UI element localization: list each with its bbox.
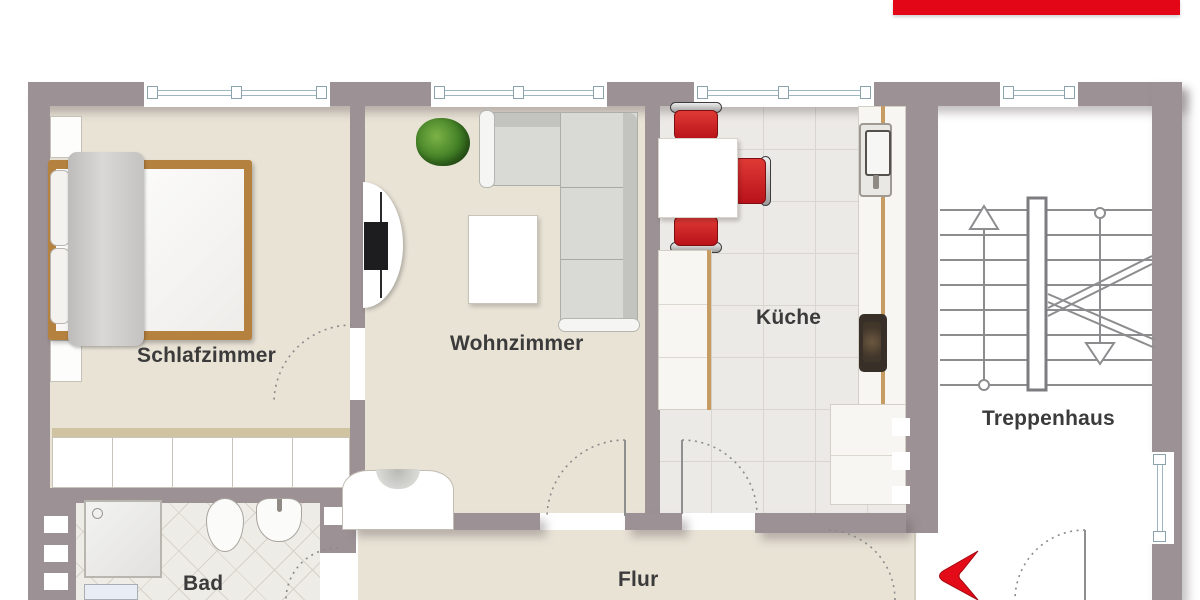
counter-edge-left	[707, 250, 711, 410]
wall-window-block-2	[44, 545, 68, 562]
dresser	[342, 470, 454, 530]
room-label-wohnzimmer: Wohnzimmer	[450, 332, 583, 356]
kitchen-table	[658, 138, 738, 218]
sink-faucet	[873, 175, 879, 189]
room-label-treppenhaus: Treppenhaus	[982, 407, 1115, 431]
stove	[859, 314, 887, 372]
sink-basin	[865, 130, 891, 176]
washing-machine	[84, 584, 138, 600]
bed-pillow-1	[50, 170, 70, 246]
sofa-armrest-left	[479, 110, 495, 188]
bath-faucet-icon	[277, 499, 282, 512]
window-kueche	[694, 79, 874, 107]
sofa-right-section	[560, 112, 638, 330]
coffee-table	[468, 215, 538, 304]
wall-window-block-3	[44, 573, 68, 590]
kitchen-chair-right	[734, 158, 766, 204]
room-label-kueche: Küche	[756, 306, 821, 330]
window-treppenhaus-right	[1146, 452, 1174, 544]
window-schlafzimmer	[144, 79, 330, 107]
kitchen-chair-top	[674, 110, 718, 140]
stove-burner	[863, 322, 881, 362]
shower-drain-icon	[92, 508, 103, 519]
shower	[84, 500, 162, 578]
room-label-schlafzimmer: Schlafzimmer	[137, 344, 276, 368]
wall-kitchen-stairs	[906, 82, 938, 533]
plant	[416, 118, 470, 166]
window-treppenhaus-top	[1000, 79, 1078, 107]
kitchen-wall-cabinet-3	[892, 486, 910, 504]
tv	[364, 222, 388, 270]
room-floor-treppenhaus	[938, 106, 1152, 600]
flur-entry-divider	[914, 533, 916, 600]
brand-color-bar	[893, 0, 1180, 15]
wall-kitchen-flur	[755, 513, 906, 533]
room-label-flur: Flur	[618, 568, 658, 592]
kitchen-counter-left	[658, 250, 712, 410]
closet-top-edge	[52, 428, 350, 437]
wall-window-block-1	[44, 516, 68, 533]
window-glass	[1007, 90, 1071, 96]
room-label-bad: Bad	[183, 572, 223, 596]
kitchen-chair-bottom	[674, 216, 718, 246]
bed-blanket	[68, 152, 144, 346]
floor-plan-canvas: Schlafzimmer Wohnzimmer Küche Treppenhau…	[0, 0, 1200, 600]
closet	[52, 437, 350, 488]
kitchen-sink	[859, 123, 892, 197]
bed-pillow-2	[50, 248, 70, 324]
sofa-armrest-bottom	[558, 318, 640, 332]
wall-door-stub	[625, 513, 682, 530]
window-glass	[1157, 459, 1163, 537]
entry-strip	[915, 533, 938, 600]
nightstand-bottom	[50, 340, 82, 382]
kitchen-wall-cabinet-2	[892, 452, 910, 470]
wall-bed-bath	[28, 488, 358, 503]
kitchen-wall-cabinet-1	[892, 418, 910, 436]
bath-shaft	[324, 507, 342, 525]
window-wohnzimmer	[431, 79, 607, 107]
dresser-curve	[376, 469, 420, 489]
